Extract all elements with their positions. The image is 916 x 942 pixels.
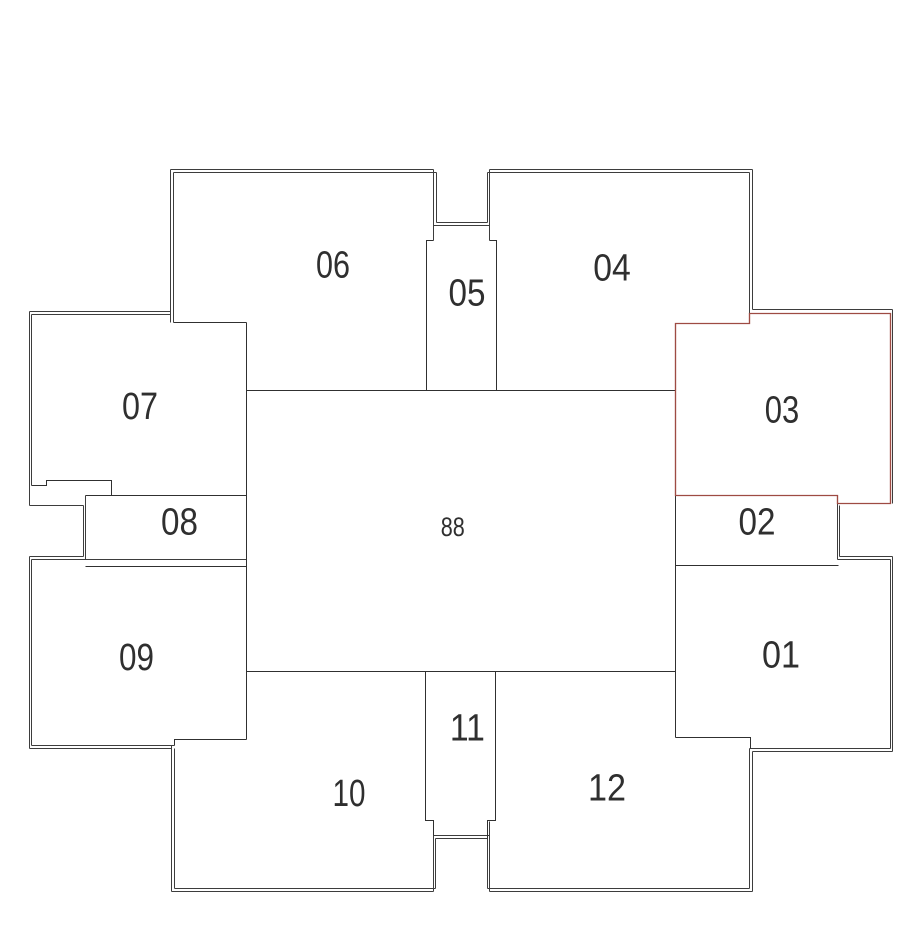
svg-text:03: 03 (765, 390, 800, 432)
svg-text:88: 88 (441, 512, 465, 542)
svg-text:08: 08 (161, 502, 198, 544)
svg-text:06: 06 (316, 245, 350, 287)
svg-text:07: 07 (122, 386, 158, 428)
svg-text:11: 11 (450, 708, 485, 750)
svg-text:09: 09 (119, 637, 154, 679)
svg-text:05: 05 (449, 273, 486, 315)
svg-text:04: 04 (593, 248, 631, 290)
svg-text:12: 12 (588, 768, 626, 810)
svg-text:02: 02 (739, 502, 776, 544)
svg-text:10: 10 (333, 773, 366, 815)
svg-text:01: 01 (762, 635, 800, 677)
